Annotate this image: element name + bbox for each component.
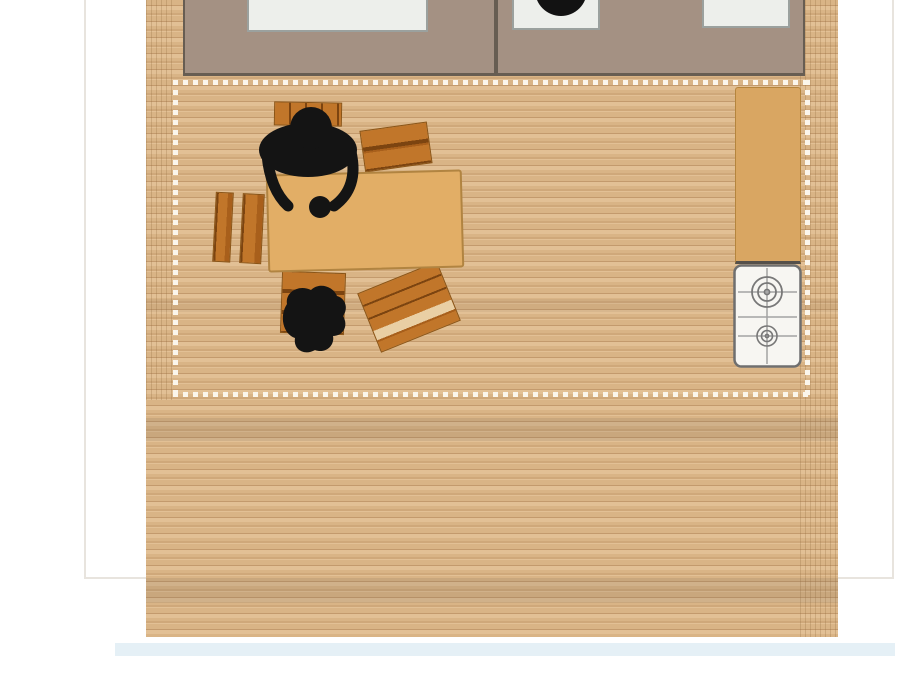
dining-area-dashed-right [805, 80, 810, 397]
floor-shade-band [146, 418, 838, 441]
person-small [275, 282, 360, 357]
counter-appliance-left [247, 0, 428, 32]
floor-plan-canvas [0, 0, 900, 675]
gas-stove [733, 264, 802, 368]
floor-base-shadow [115, 643, 895, 656]
chair-plank [212, 192, 234, 263]
tall-cabinet [735, 87, 801, 264]
floor-shade-band [146, 578, 838, 603]
dining-area-dashed-left [173, 80, 178, 397]
counter-appliance-right [702, 0, 790, 28]
person-hands [309, 196, 331, 218]
wall-outline-right [892, 0, 894, 578]
person-adult [250, 100, 370, 220]
person-head [290, 107, 332, 149]
dining-area-dashed-bottom [173, 392, 810, 397]
floor-hatch-left [146, 0, 174, 400]
dining-area-dashed-top [173, 80, 810, 85]
wall-outline-left [84, 0, 86, 578]
person-small-body [283, 286, 346, 353]
